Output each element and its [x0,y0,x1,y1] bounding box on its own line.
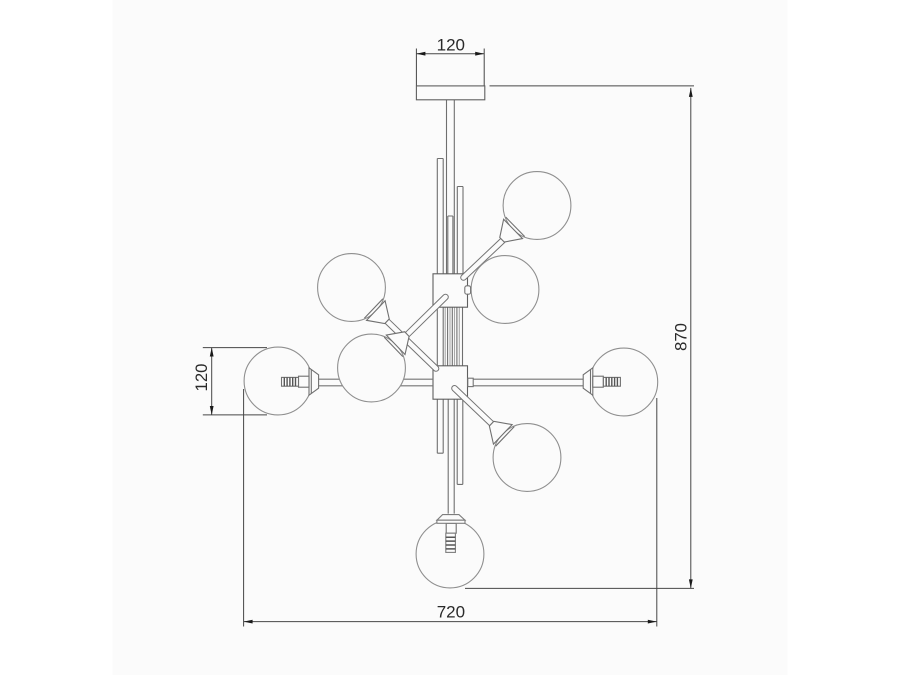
svg-text:720: 720 [437,603,465,622]
svg-text:120: 120 [192,364,211,392]
svg-text:120: 120 [437,36,465,55]
svg-text:870: 870 [671,323,690,351]
